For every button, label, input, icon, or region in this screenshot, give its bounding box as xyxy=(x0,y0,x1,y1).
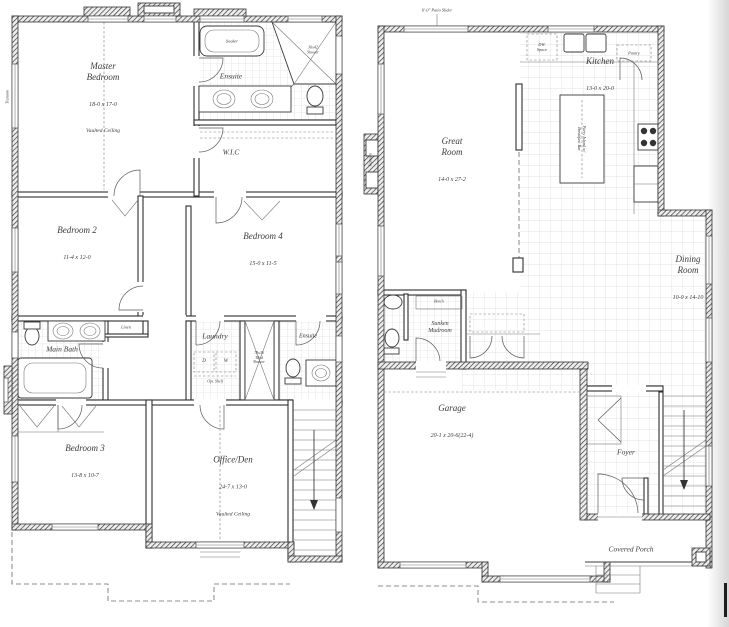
floor-plan-linework xyxy=(0,0,729,627)
floor-plan-sheet: Transom Master Bedroom 18-0 x 17-0 Vault… xyxy=(0,0,729,627)
left-plan xyxy=(4,3,342,601)
page-edge-shadow xyxy=(707,0,729,627)
right-plan xyxy=(364,14,712,602)
page-corner-mark xyxy=(724,583,727,617)
